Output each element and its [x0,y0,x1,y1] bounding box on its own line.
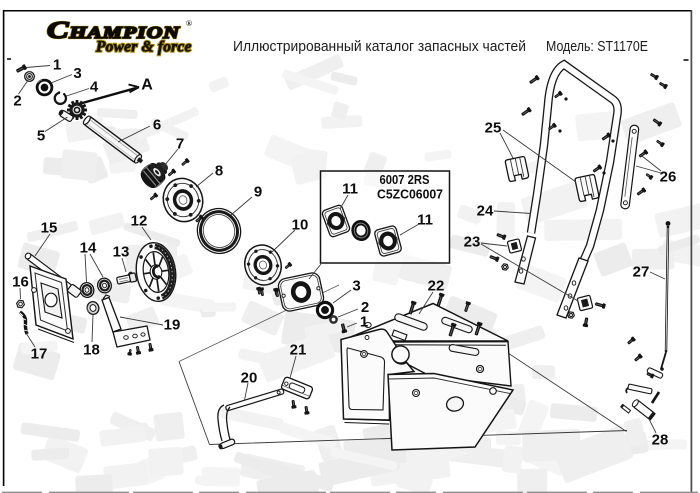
svg-text:16: 16 [12,273,29,290]
svg-text:13: 13 [113,243,130,260]
svg-text:9: 9 [254,183,262,200]
svg-text:10: 10 [292,216,309,233]
svg-text:22: 22 [428,277,445,294]
svg-text:1: 1 [53,56,61,73]
svg-text:3: 3 [73,65,81,82]
svg-text:6007 2RS: 6007 2RS [380,172,430,187]
svg-text:®: ® [186,19,192,28]
svg-text:Иллюстрированный каталог запас: Иллюстрированный каталог запасных частей [233,38,526,55]
svg-text:23: 23 [464,233,481,250]
svg-text:3: 3 [352,277,360,294]
svg-text:21: 21 [290,341,307,358]
svg-text:18: 18 [83,341,100,358]
svg-text:5: 5 [37,127,45,144]
svg-text:Модель: ST1170E: Модель: ST1170E [546,38,648,55]
svg-text:20: 20 [241,369,258,386]
svg-text:11: 11 [417,211,433,228]
svg-text:17: 17 [31,345,48,362]
svg-text:12: 12 [131,212,148,229]
svg-text:2: 2 [13,92,21,109]
svg-text:25: 25 [485,119,502,136]
svg-text:28: 28 [652,431,669,448]
svg-text:Power & force: Power & force [96,39,192,56]
svg-text:26: 26 [660,168,677,185]
svg-text:27: 27 [633,263,650,280]
svg-text:15: 15 [41,219,58,236]
svg-text:14: 14 [80,239,97,256]
svg-text:19: 19 [164,316,181,333]
svg-text:4: 4 [90,78,99,95]
svg-text:1: 1 [360,313,368,330]
svg-text:8: 8 [215,162,223,179]
svg-text:11: 11 [342,180,358,197]
svg-text:24: 24 [477,202,494,219]
svg-text:7: 7 [176,135,184,152]
svg-text:C5ZC06007: C5ZC06007 [377,187,443,202]
svg-text:A: A [141,76,153,93]
svg-text:6: 6 [153,116,161,133]
